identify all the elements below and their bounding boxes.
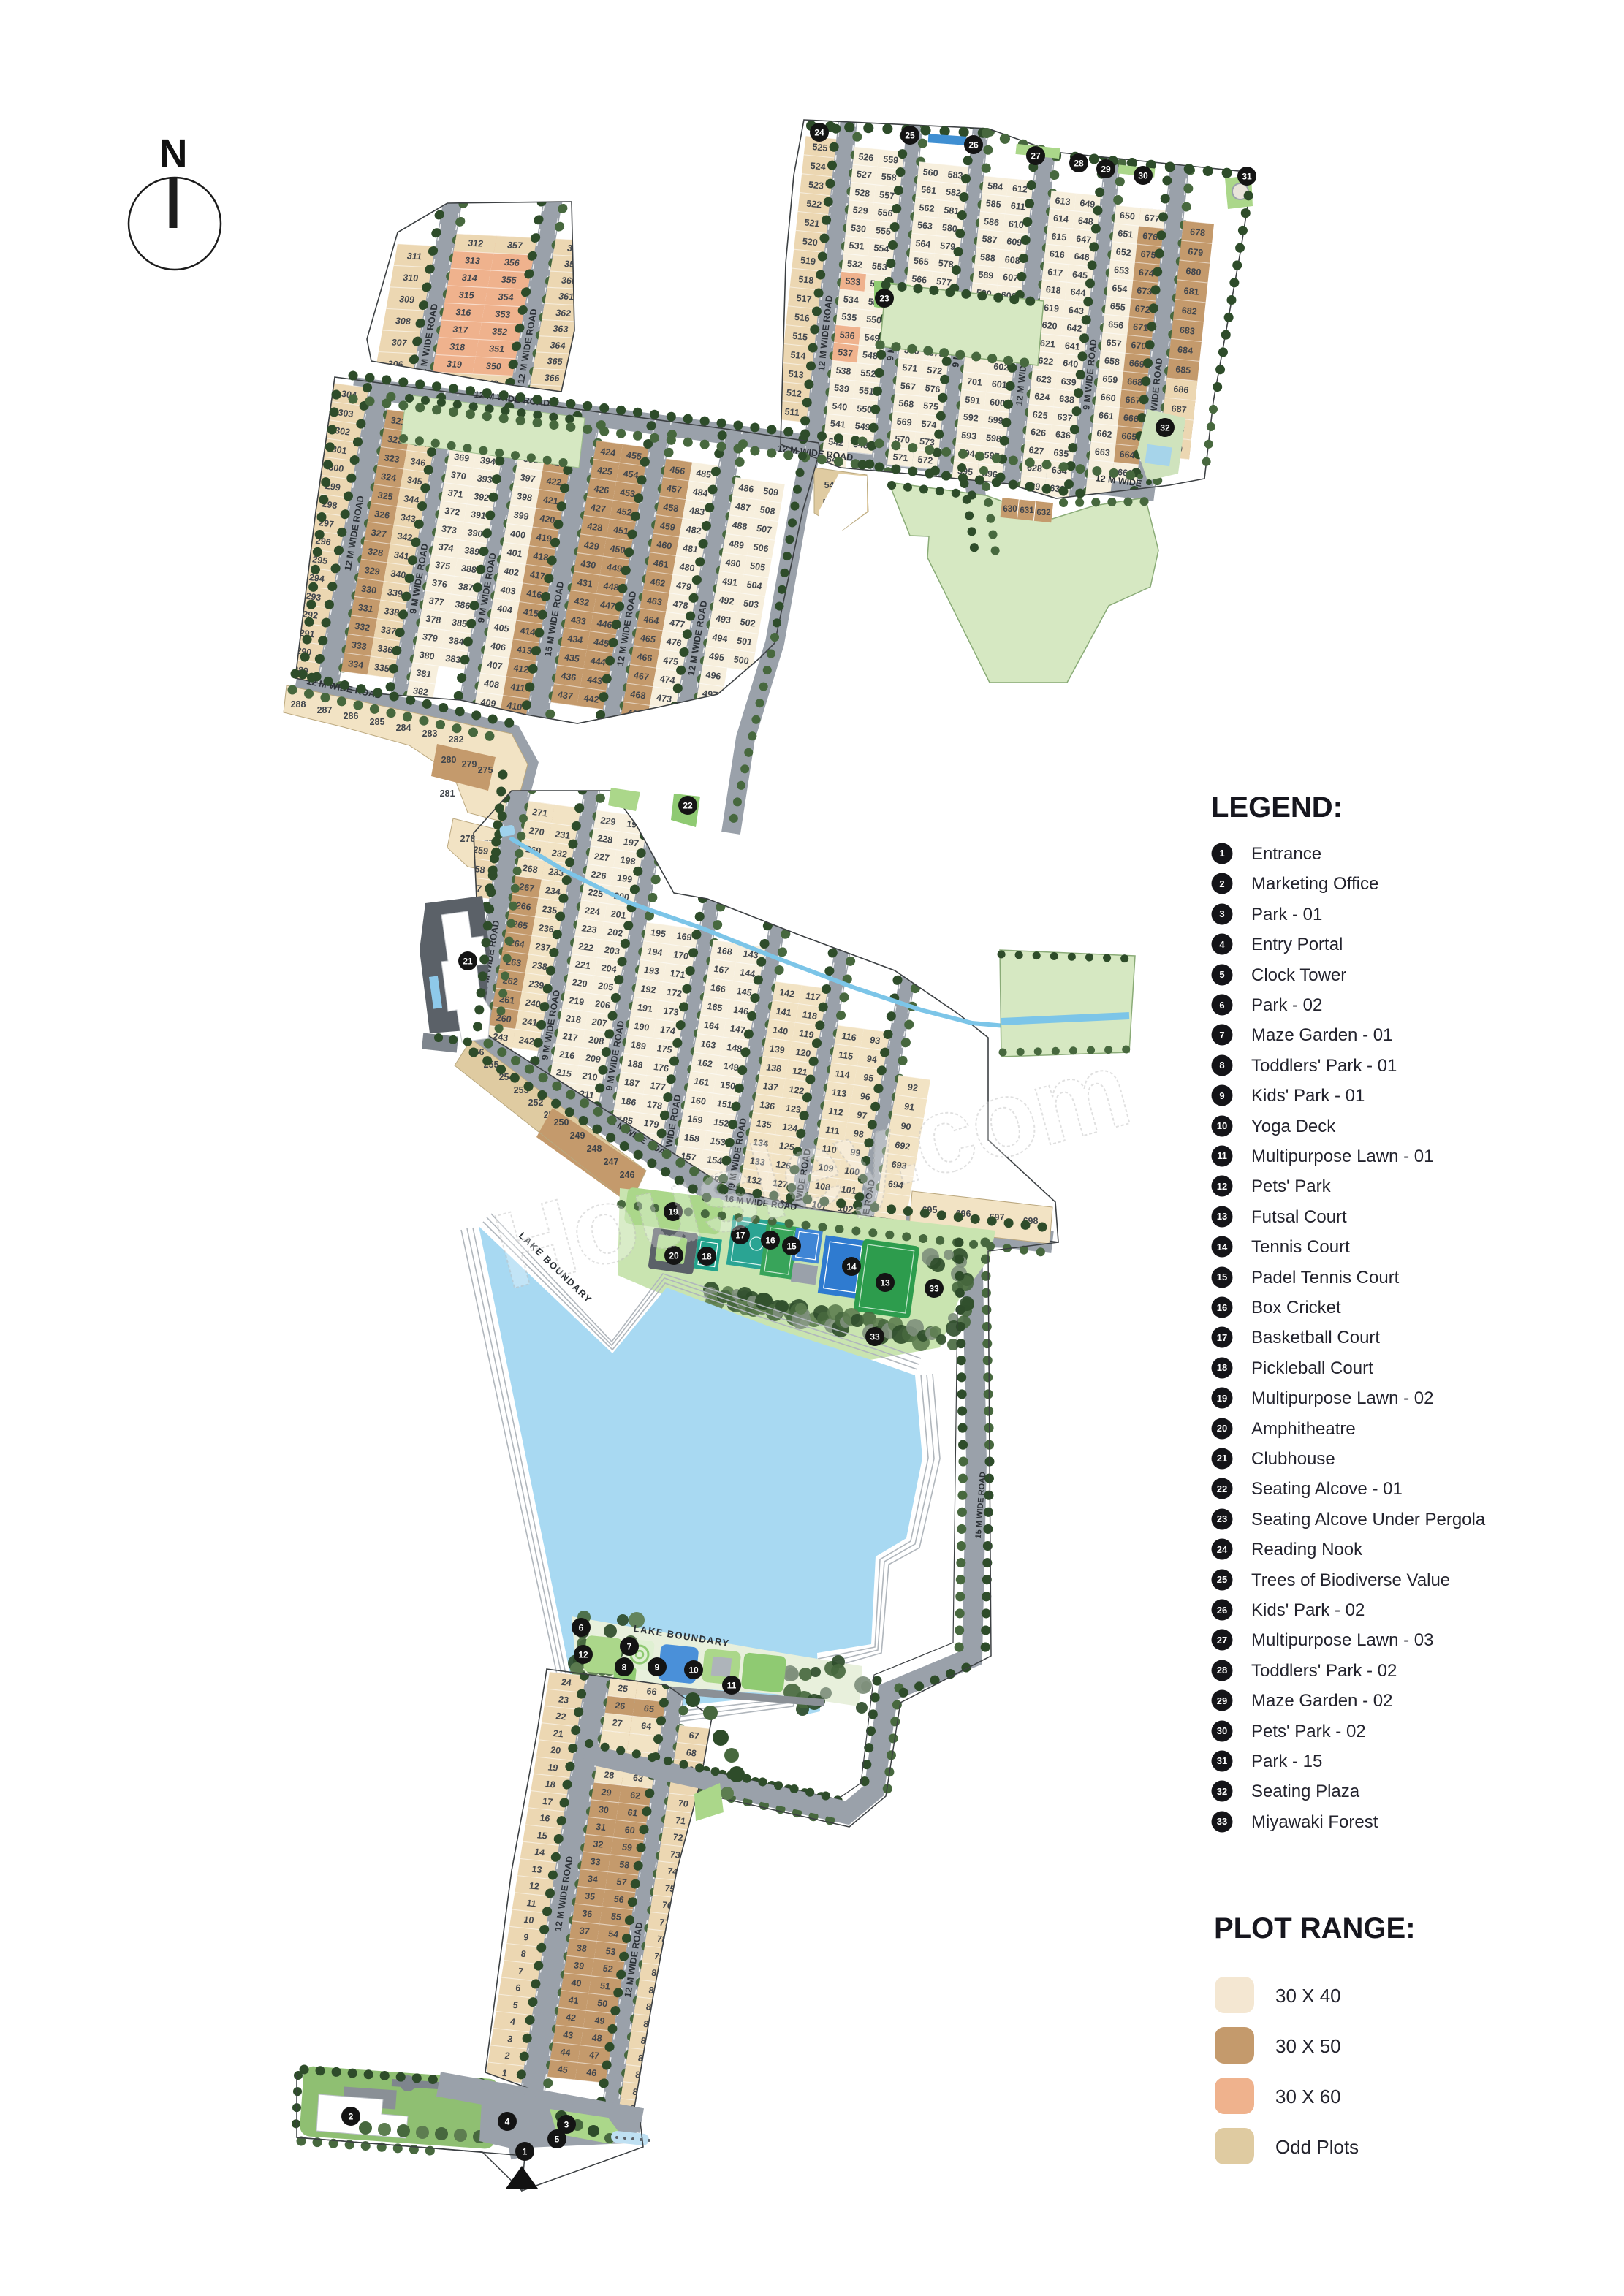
svg-text:23: 23	[558, 1695, 569, 1706]
svg-text:94: 94	[866, 1054, 878, 1065]
svg-text:9: 9	[1219, 1090, 1224, 1101]
svg-text:451: 451	[612, 525, 629, 537]
svg-text:380: 380	[419, 650, 436, 662]
svg-text:113: 113	[831, 1087, 847, 1099]
svg-text:3: 3	[1219, 908, 1224, 919]
svg-text:197: 197	[623, 837, 640, 849]
svg-text:119: 119	[798, 1028, 814, 1040]
svg-text:163: 163	[700, 1038, 717, 1051]
svg-text:600: 600	[990, 397, 1006, 408]
svg-text:32: 32	[1217, 1786, 1227, 1797]
svg-text:617: 617	[1047, 267, 1063, 278]
svg-text:541: 541	[830, 418, 846, 430]
svg-text:218: 218	[565, 1013, 582, 1025]
svg-text:615: 615	[1051, 231, 1067, 243]
svg-text:120: 120	[794, 1047, 811, 1060]
svg-text:PLOT RANGE:: PLOT RANGE:	[1214, 1912, 1416, 1945]
svg-text:249: 249	[570, 1130, 585, 1141]
svg-text:150: 150	[719, 1079, 736, 1092]
svg-text:Yoga Deck: Yoga Deck	[1251, 1117, 1336, 1136]
svg-text:N: N	[159, 132, 188, 175]
svg-text:557: 557	[879, 189, 895, 201]
svg-text:493: 493	[715, 614, 732, 626]
svg-text:40: 40	[570, 1977, 582, 1988]
svg-text:141: 141	[775, 1006, 792, 1019]
svg-text:448: 448	[603, 581, 620, 593]
svg-text:647: 647	[1076, 234, 1092, 246]
svg-text:679: 679	[1188, 246, 1204, 258]
svg-text:533: 533	[845, 275, 861, 287]
svg-text:344: 344	[403, 493, 420, 506]
svg-text:Pets' Park: Pets' Park	[1251, 1176, 1332, 1196]
svg-text:28: 28	[1074, 159, 1084, 169]
svg-text:549: 549	[854, 421, 870, 433]
svg-text:49: 49	[594, 2015, 606, 2026]
svg-text:36: 36	[581, 1908, 593, 1919]
svg-text:192: 192	[640, 984, 656, 996]
svg-text:188: 188	[626, 1058, 643, 1071]
svg-text:2: 2	[1219, 878, 1224, 889]
svg-text:550: 550	[866, 314, 882, 326]
svg-text:Multipurpose Lawn - 01: Multipurpose Lawn - 01	[1251, 1147, 1433, 1166]
svg-text:474: 474	[659, 674, 676, 686]
svg-text:392: 392	[473, 491, 490, 503]
svg-text:502: 502	[740, 617, 756, 629]
svg-text:621: 621	[1039, 338, 1055, 350]
svg-text:415: 415	[523, 607, 539, 619]
svg-text:50: 50	[596, 1998, 608, 2009]
svg-text:464: 464	[642, 614, 659, 626]
svg-text:648: 648	[1077, 216, 1093, 227]
svg-text:31: 31	[1217, 1755, 1227, 1766]
svg-text:627: 627	[1028, 445, 1044, 457]
svg-text:489: 489	[728, 539, 745, 551]
svg-text:640: 640	[1063, 358, 1079, 370]
svg-text:32: 32	[1160, 423, 1170, 433]
svg-text:466: 466	[636, 652, 653, 664]
svg-text:516: 516	[794, 312, 810, 324]
svg-text:372: 372	[444, 506, 460, 518]
svg-text:139: 139	[769, 1044, 786, 1056]
svg-text:413: 413	[516, 645, 533, 657]
svg-text:308: 308	[395, 316, 411, 327]
svg-text:115: 115	[838, 1049, 854, 1061]
svg-text:121: 121	[792, 1065, 808, 1078]
svg-text:16: 16	[1217, 1302, 1227, 1313]
svg-text:384: 384	[448, 635, 465, 647]
svg-text:456: 456	[669, 465, 686, 477]
svg-text:614: 614	[1052, 213, 1069, 224]
svg-text:191: 191	[637, 1002, 653, 1014]
svg-text:446: 446	[596, 618, 613, 631]
svg-text:337: 337	[380, 625, 397, 637]
svg-text:Tennis Court: Tennis Court	[1251, 1237, 1350, 1257]
svg-text:41: 41	[568, 1995, 580, 2006]
svg-text:678: 678	[1189, 227, 1205, 238]
svg-text:25: 25	[905, 131, 915, 141]
svg-text:508: 508	[759, 504, 776, 517]
svg-text:223: 223	[581, 923, 598, 935]
svg-text:635: 635	[1053, 447, 1069, 459]
svg-text:676: 676	[1142, 231, 1158, 243]
svg-text:684: 684	[1177, 344, 1193, 356]
svg-text:203: 203	[604, 945, 621, 957]
svg-text:461: 461	[653, 558, 669, 571]
svg-text:506: 506	[753, 542, 770, 555]
svg-text:20: 20	[1217, 1423, 1227, 1434]
svg-text:521: 521	[804, 217, 820, 229]
svg-text:671: 671	[1132, 322, 1148, 333]
svg-text:564: 564	[915, 238, 931, 250]
svg-text:672: 672	[1134, 303, 1150, 315]
svg-text:643: 643	[1068, 305, 1084, 316]
svg-text:419: 419	[536, 532, 553, 544]
svg-text:673: 673	[1137, 285, 1153, 297]
svg-text:550: 550	[857, 403, 873, 415]
svg-text:61: 61	[627, 1807, 639, 1818]
svg-text:Box Cricket: Box Cricket	[1251, 1298, 1341, 1318]
svg-text:56: 56	[613, 1894, 625, 1905]
svg-text:584: 584	[987, 180, 1003, 192]
svg-text:26: 26	[614, 1700, 626, 1711]
svg-text:174: 174	[659, 1025, 676, 1037]
svg-text:492: 492	[718, 595, 735, 607]
svg-text:534: 534	[843, 294, 859, 305]
svg-text:487: 487	[735, 501, 751, 514]
svg-text:661: 661	[1098, 410, 1114, 422]
svg-text:430: 430	[580, 558, 596, 571]
svg-text:668: 668	[1127, 376, 1143, 388]
svg-text:13: 13	[531, 1864, 542, 1875]
svg-text:620: 620	[1041, 320, 1058, 332]
svg-text:408: 408	[483, 678, 500, 691]
svg-text:482: 482	[686, 524, 702, 536]
svg-text:280: 280	[441, 755, 457, 765]
svg-text:11: 11	[727, 1681, 737, 1691]
svg-text:68: 68	[686, 1747, 697, 1758]
svg-text:18: 18	[1217, 1362, 1227, 1373]
svg-text:553: 553	[871, 261, 887, 273]
svg-text:454: 454	[623, 468, 640, 481]
svg-text:202: 202	[607, 927, 623, 939]
svg-text:217: 217	[562, 1031, 579, 1044]
svg-text:43: 43	[562, 2029, 574, 2040]
svg-text:340: 340	[390, 569, 406, 581]
svg-text:Amphitheatre: Amphitheatre	[1251, 1419, 1356, 1439]
svg-text:198: 198	[620, 855, 637, 867]
svg-text:137: 137	[762, 1081, 779, 1093]
svg-text:29: 29	[1101, 164, 1111, 175]
svg-text:609: 609	[1006, 236, 1022, 248]
svg-text:325: 325	[377, 490, 394, 503]
svg-text:345: 345	[406, 475, 423, 487]
svg-text:62: 62	[629, 1790, 641, 1801]
svg-text:186: 186	[620, 1095, 637, 1108]
svg-text:23: 23	[1217, 1513, 1227, 1524]
svg-text:574: 574	[921, 419, 937, 430]
svg-text:8: 8	[1219, 1060, 1224, 1071]
svg-text:205: 205	[597, 981, 614, 993]
svg-text:140: 140	[772, 1025, 789, 1037]
svg-text:4: 4	[505, 2117, 510, 2127]
svg-text:14: 14	[1217, 1242, 1228, 1252]
svg-text:271: 271	[531, 807, 548, 819]
svg-text:407: 407	[487, 659, 504, 672]
svg-text:27: 27	[1031, 151, 1041, 161]
svg-text:363: 363	[552, 324, 569, 335]
svg-text:168: 168	[716, 945, 733, 957]
svg-text:27: 27	[1217, 1635, 1227, 1646]
svg-text:323: 323	[384, 452, 401, 465]
svg-text:231: 231	[554, 829, 571, 841]
svg-text:236: 236	[538, 922, 555, 935]
svg-text:37: 37	[579, 1926, 591, 1936]
svg-text:193: 193	[643, 965, 660, 977]
svg-text:332: 332	[354, 621, 371, 634]
svg-text:284: 284	[396, 723, 411, 733]
svg-text:248: 248	[587, 1144, 602, 1154]
svg-text:486: 486	[737, 482, 754, 495]
svg-text:610: 610	[1008, 218, 1024, 230]
svg-text:24: 24	[1217, 1544, 1228, 1555]
svg-text:24: 24	[561, 1677, 572, 1688]
svg-text:622: 622	[1038, 355, 1054, 367]
svg-text:666: 666	[1123, 413, 1139, 425]
svg-text:30 X 40: 30 X 40	[1275, 1985, 1341, 2007]
svg-text:270: 270	[528, 826, 545, 838]
svg-text:517: 517	[796, 293, 812, 305]
svg-text:4: 4	[1219, 939, 1225, 950]
svg-text:279: 279	[462, 759, 477, 769]
svg-text:314: 314	[461, 273, 478, 284]
svg-text:190: 190	[633, 1021, 650, 1033]
svg-text:Kids' Park - 02: Kids' Park - 02	[1251, 1600, 1365, 1620]
svg-text:331: 331	[357, 602, 374, 615]
svg-text:579: 579	[940, 240, 956, 252]
svg-text:659: 659	[1102, 373, 1118, 385]
svg-text:169: 169	[676, 931, 693, 943]
svg-text:324: 324	[380, 471, 397, 484]
svg-text:443: 443	[586, 674, 603, 687]
svg-text:336: 336	[376, 643, 393, 655]
svg-text:283: 283	[422, 729, 438, 739]
svg-text:680: 680	[1185, 266, 1202, 278]
svg-text:662: 662	[1096, 428, 1112, 440]
svg-text:122: 122	[788, 1084, 805, 1097]
svg-text:11: 11	[526, 1898, 537, 1909]
svg-text:144: 144	[739, 968, 756, 980]
svg-text:473: 473	[656, 693, 672, 705]
svg-text:563: 563	[917, 220, 933, 232]
svg-text:581: 581	[944, 205, 960, 216]
svg-text:369: 369	[453, 452, 470, 464]
svg-text:148: 148	[726, 1042, 743, 1054]
svg-text:312: 312	[467, 238, 484, 249]
svg-text:335: 335	[373, 662, 390, 674]
svg-text:351: 351	[488, 343, 505, 354]
svg-text:401: 401	[506, 547, 523, 560]
svg-text:59: 59	[621, 1842, 633, 1853]
svg-text:19: 19	[547, 1762, 558, 1773]
svg-text:Basketball Court: Basketball Court	[1251, 1328, 1380, 1347]
svg-text:667: 667	[1125, 395, 1141, 406]
svg-text:424: 424	[599, 446, 616, 459]
svg-text:641: 641	[1064, 341, 1080, 352]
svg-text:481: 481	[682, 543, 699, 555]
svg-text:467: 467	[633, 670, 650, 683]
svg-text:201: 201	[610, 908, 627, 921]
svg-text:281: 281	[440, 788, 455, 799]
svg-text:356: 356	[504, 257, 520, 268]
svg-text:394: 394	[479, 455, 496, 468]
svg-text:405: 405	[493, 622, 510, 634]
svg-text:608: 608	[1004, 254, 1020, 266]
svg-text:215: 215	[555, 1067, 572, 1079]
svg-text:421: 421	[542, 495, 559, 507]
svg-text:587: 587	[982, 234, 998, 246]
svg-text:364: 364	[549, 340, 566, 351]
svg-text:465: 465	[640, 633, 656, 645]
svg-text:540: 540	[832, 401, 848, 413]
svg-text:70: 70	[678, 1798, 689, 1809]
svg-text:371: 371	[447, 487, 464, 500]
svg-text:374: 374	[438, 541, 455, 554]
svg-text:397: 397	[520, 472, 536, 484]
svg-text:170: 170	[672, 949, 689, 962]
svg-text:266: 266	[515, 900, 532, 913]
svg-text:1: 1	[523, 2147, 528, 2157]
svg-text:429: 429	[583, 540, 600, 552]
svg-text:17: 17	[542, 1796, 553, 1807]
svg-text:527: 527	[856, 169, 872, 180]
svg-text:1: 1	[1219, 848, 1224, 859]
svg-text:468: 468	[629, 689, 646, 702]
svg-text:116: 116	[841, 1031, 857, 1043]
svg-text:216: 216	[558, 1049, 575, 1062]
svg-text:260: 260	[496, 1013, 512, 1025]
svg-text:31: 31	[595, 1822, 607, 1833]
svg-text:57: 57	[616, 1877, 628, 1888]
svg-text:5: 5	[1219, 969, 1224, 980]
svg-text:234: 234	[545, 885, 561, 897]
svg-text:226: 226	[591, 869, 607, 881]
svg-text:402: 402	[503, 566, 520, 578]
svg-text:45: 45	[557, 2064, 569, 2075]
svg-text:568: 568	[898, 398, 914, 410]
svg-text:624: 624	[1034, 391, 1050, 403]
svg-text:577: 577	[936, 276, 952, 288]
svg-text:42: 42	[565, 2012, 577, 2023]
svg-text:619: 619	[1044, 303, 1060, 314]
svg-text:33: 33	[929, 1284, 939, 1294]
svg-text:450: 450	[610, 544, 626, 556]
svg-text:179: 179	[643, 1118, 660, 1130]
svg-text:428: 428	[586, 521, 603, 533]
svg-text:Park - 15: Park - 15	[1251, 1752, 1322, 1771]
svg-text:366: 366	[544, 373, 561, 384]
svg-text:318: 318	[449, 342, 466, 353]
svg-text:313: 313	[464, 255, 481, 266]
svg-text:282: 282	[449, 734, 464, 745]
svg-text:494: 494	[711, 632, 728, 645]
svg-text:457: 457	[666, 483, 683, 495]
svg-text:378: 378	[425, 614, 441, 626]
svg-text:566: 566	[911, 274, 927, 286]
svg-text:6: 6	[579, 1623, 584, 1633]
svg-text:12: 12	[578, 1650, 588, 1660]
svg-text:530: 530	[851, 223, 867, 235]
svg-text:592: 592	[963, 412, 979, 424]
svg-text:357: 357	[506, 240, 523, 251]
svg-text:38: 38	[576, 1943, 588, 1954]
svg-text:625: 625	[1032, 409, 1048, 421]
svg-text:Miyawaki Forest: Miyawaki Forest	[1251, 1812, 1378, 1832]
svg-text:Toddlers' Park - 02: Toddlers' Park - 02	[1251, 1661, 1397, 1681]
svg-text:490: 490	[724, 558, 741, 570]
svg-text:578: 578	[938, 258, 954, 270]
svg-text:11: 11	[1217, 1150, 1227, 1161]
svg-text:242: 242	[518, 1035, 535, 1047]
svg-text:538: 538	[835, 365, 851, 377]
svg-text:682: 682	[1181, 305, 1197, 317]
svg-text:330: 330	[360, 584, 377, 596]
svg-text:30: 30	[1138, 171, 1148, 181]
svg-text:406: 406	[490, 641, 506, 653]
svg-text:427: 427	[590, 502, 607, 514]
svg-text:475: 475	[662, 655, 679, 667]
svg-text:411: 411	[509, 682, 525, 693]
svg-text:237: 237	[534, 941, 551, 954]
svg-text:25: 25	[1217, 1574, 1227, 1585]
svg-text:145: 145	[736, 986, 753, 998]
svg-text:21: 21	[1217, 1453, 1227, 1464]
svg-text:556: 556	[877, 207, 893, 218]
svg-text:164: 164	[703, 1020, 720, 1033]
svg-text:Futsal Court: Futsal Court	[1251, 1207, 1347, 1227]
svg-text:514: 514	[790, 350, 806, 362]
svg-text:67: 67	[688, 1730, 700, 1741]
svg-text:15: 15	[1217, 1271, 1227, 1282]
svg-text:24: 24	[814, 128, 824, 138]
svg-text:613: 613	[1055, 196, 1071, 208]
svg-text:55: 55	[610, 1911, 622, 1922]
svg-text:Entrance: Entrance	[1251, 844, 1321, 864]
svg-text:701: 701	[966, 376, 982, 388]
svg-text:240: 240	[525, 997, 542, 1010]
svg-text:22: 22	[555, 1711, 567, 1722]
svg-text:Multipurpose Lawn - 02: Multipurpose Lawn - 02	[1251, 1388, 1433, 1408]
svg-text:607: 607	[1003, 272, 1019, 284]
svg-text:388: 388	[460, 563, 477, 576]
svg-text:509: 509	[762, 486, 779, 498]
svg-text:654: 654	[1112, 283, 1128, 294]
svg-text:171: 171	[669, 968, 686, 981]
svg-text:51: 51	[599, 1980, 611, 1991]
svg-text:685: 685	[1175, 364, 1191, 376]
svg-text:187: 187	[623, 1077, 640, 1090]
svg-text:675: 675	[1140, 249, 1156, 261]
svg-text:611: 611	[1010, 201, 1026, 213]
svg-text:15: 15	[786, 1242, 797, 1252]
svg-text:476: 476	[666, 636, 683, 649]
svg-text:601: 601	[991, 379, 1007, 390]
svg-text:571: 571	[892, 452, 908, 463]
svg-text:66: 66	[646, 1686, 658, 1697]
svg-text:599: 599	[987, 414, 1003, 426]
svg-text:343: 343	[400, 512, 417, 525]
svg-text:361: 361	[558, 291, 574, 302]
svg-text:686: 686	[1173, 384, 1189, 395]
